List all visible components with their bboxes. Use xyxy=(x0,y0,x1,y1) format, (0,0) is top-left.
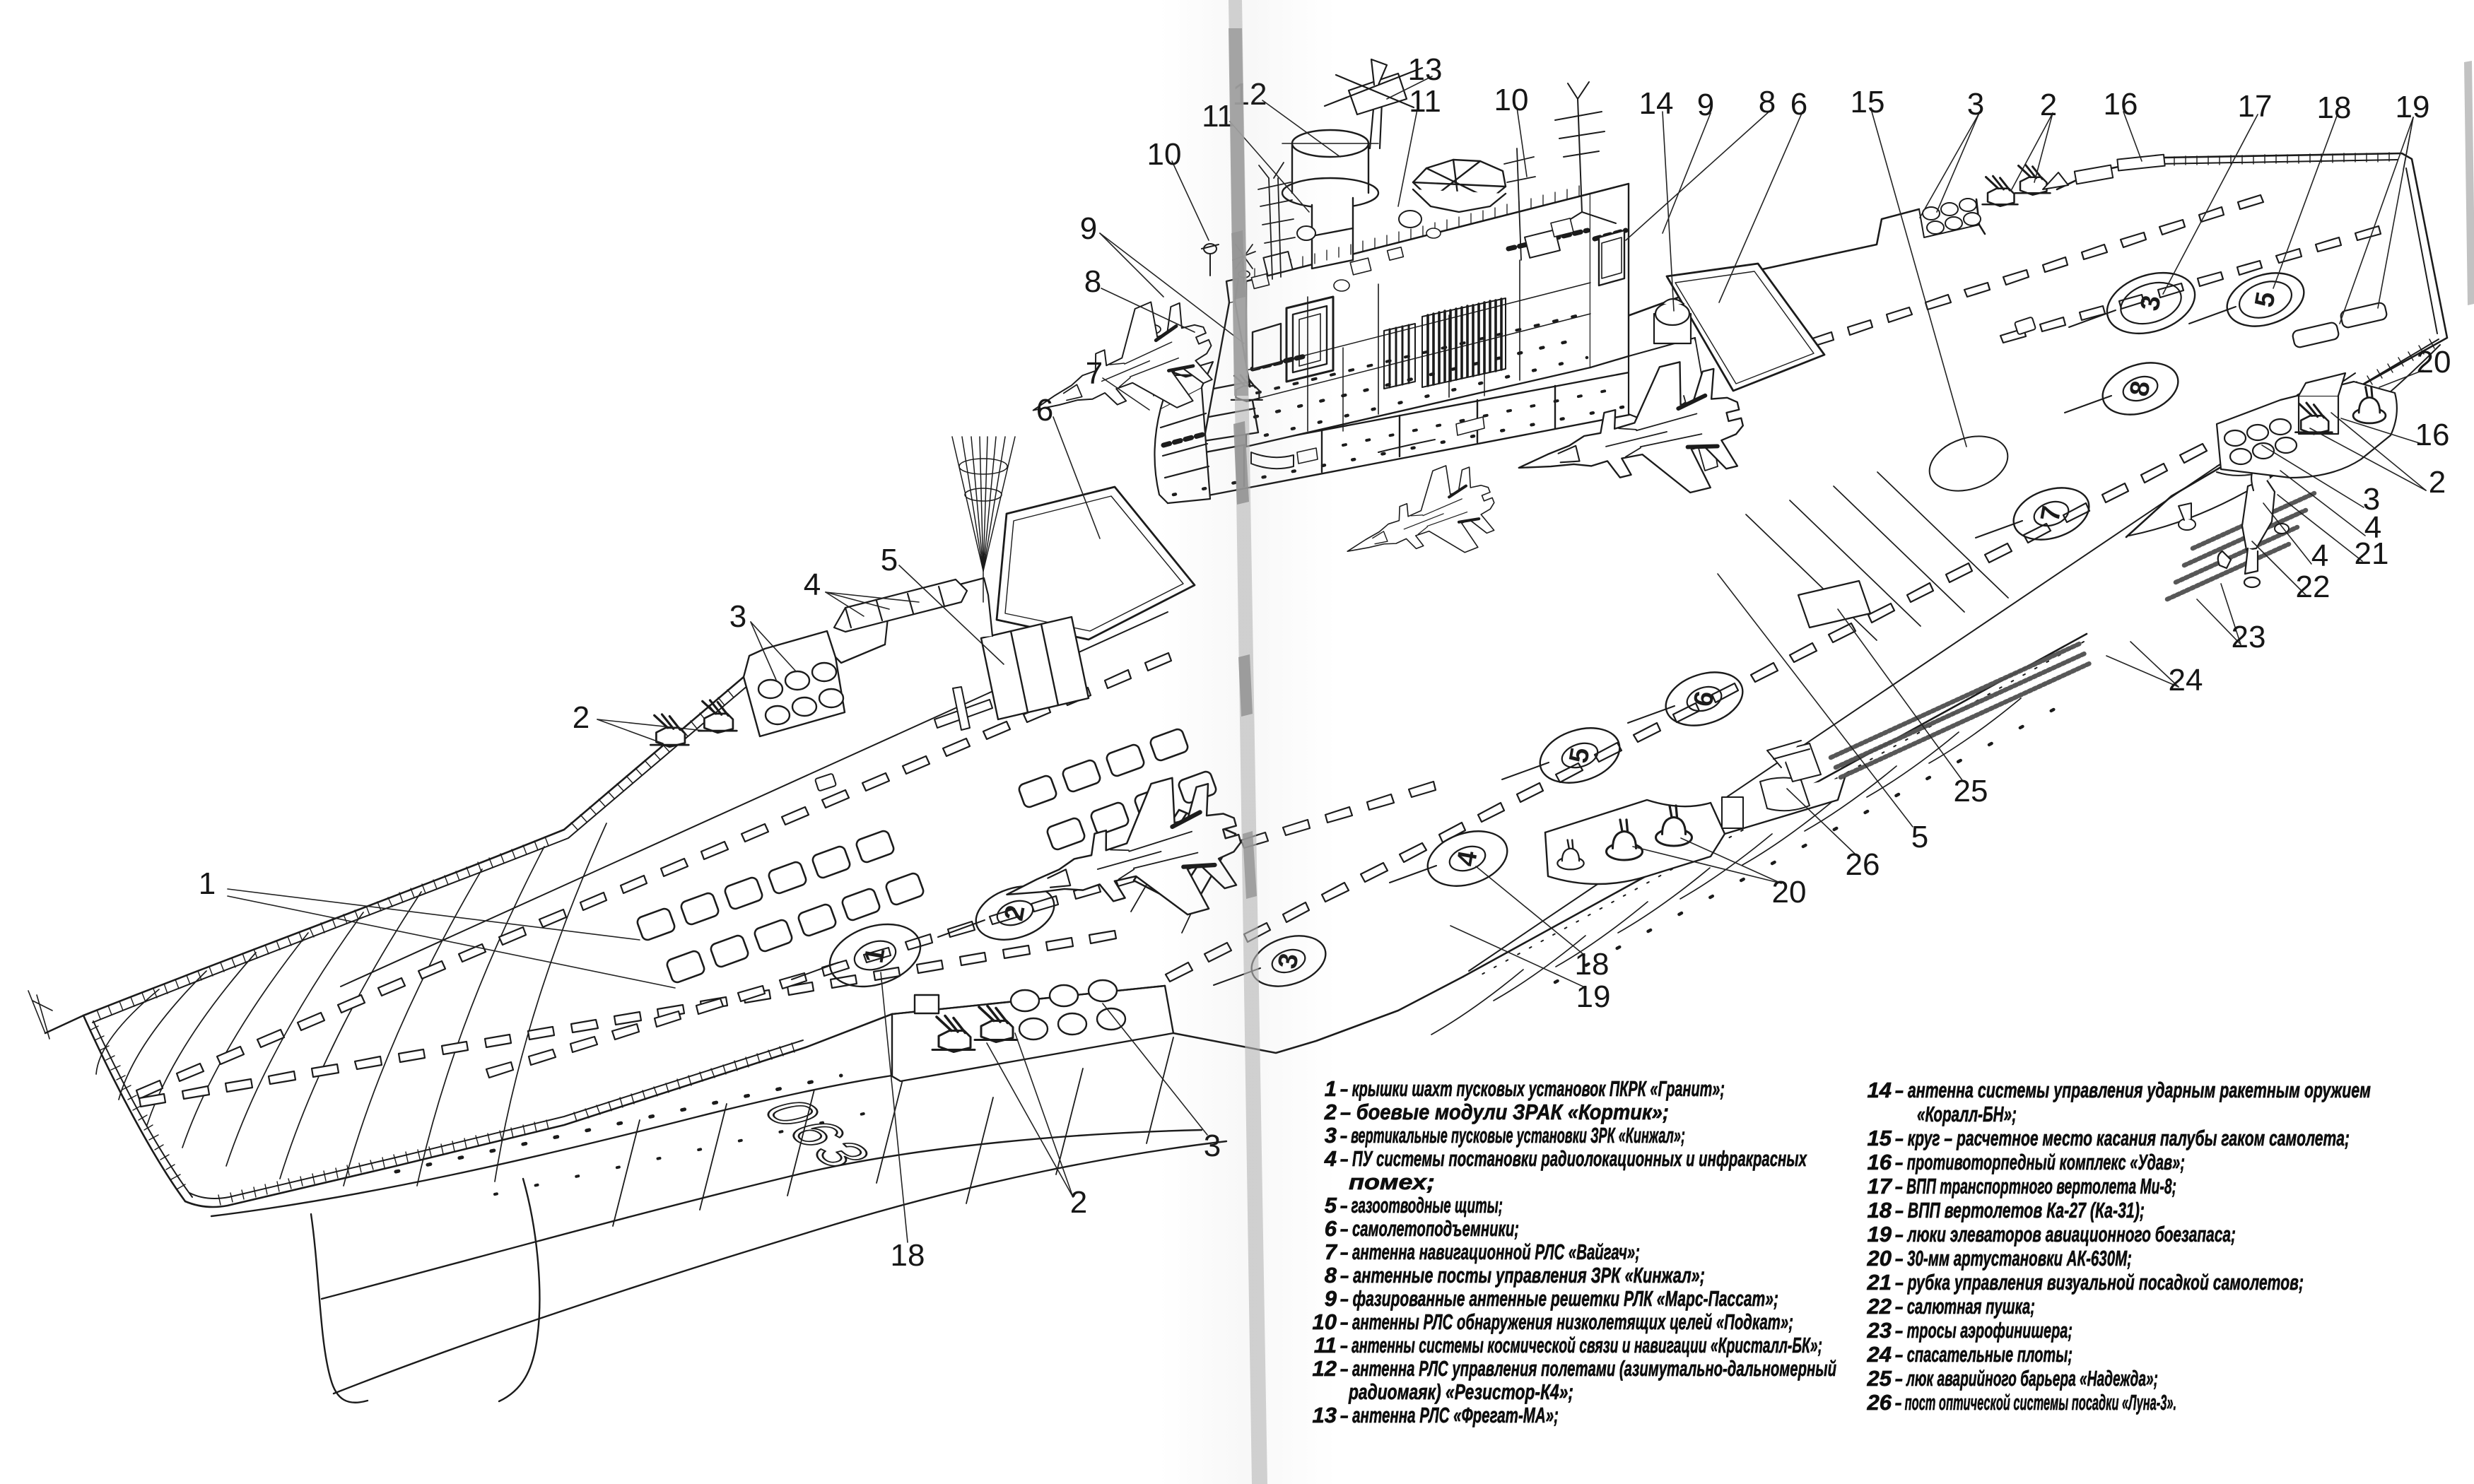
svg-text:10: 10 xyxy=(1494,83,1529,117)
svg-text:радиомаяк) «Резистор-К4»;: радиомаяк) «Резистор-К4»; xyxy=(1348,1379,1573,1404)
svg-text:3: 3 xyxy=(1967,87,1984,122)
svg-text:8: 8 xyxy=(1759,85,1776,119)
svg-text:6: 6 xyxy=(1036,393,1053,428)
svg-text:6: 6 xyxy=(1790,87,1807,122)
svg-text:19: 19 xyxy=(1576,979,1611,1014)
svg-text:2: 2 xyxy=(2040,88,2057,122)
svg-text:– самолетоподъемники;: – самолетоподъемники; xyxy=(1340,1216,1519,1241)
svg-text:14: 14 xyxy=(1639,86,1674,121)
svg-text:14: 14 xyxy=(1868,1078,1892,1102)
svg-text:8: 8 xyxy=(1084,264,1101,299)
svg-text:5: 5 xyxy=(881,543,898,577)
svg-text:22: 22 xyxy=(2296,570,2331,604)
svg-text:– антенна навигационной РЛС «В: – антенна навигационной РЛС «Вайгач»; xyxy=(1340,1239,1640,1264)
svg-text:11: 11 xyxy=(1409,84,1441,119)
svg-text:13: 13 xyxy=(1408,52,1443,87)
svg-text:18: 18 xyxy=(891,1238,925,1273)
svg-text:24: 24 xyxy=(1867,1342,1892,1367)
svg-text:9: 9 xyxy=(1697,88,1714,122)
svg-text:17: 17 xyxy=(1868,1174,1893,1199)
svg-text:2: 2 xyxy=(573,700,590,735)
svg-text:20: 20 xyxy=(1772,875,1807,909)
svg-text:– ВПП вертолетов Ка-27 (Ка-31): – ВПП вертолетов Ка-27 (Ка-31); xyxy=(1895,1198,2145,1223)
svg-text:26: 26 xyxy=(1846,847,1880,882)
svg-text:15: 15 xyxy=(1851,85,1885,119)
svg-text:18: 18 xyxy=(1868,1198,1892,1223)
svg-text:– крышки шахт пусковых установ: – крышки шахт пусковых установок ПКРК «Г… xyxy=(1340,1076,1725,1101)
svg-text:– антенна РЛС «Фрегат-МА»;: – антенна РЛС «Фрегат-МА»; xyxy=(1340,1403,1559,1427)
svg-text:– 30-мм артустановки АК-630М;: – 30-мм артустановки АК-630М; xyxy=(1895,1246,2132,1271)
svg-text:– ВПП транспортного вертолета: – ВПП транспортного вертолета Ми-8; xyxy=(1895,1174,2176,1199)
svg-text:– противоторпедный комплекс «У: – противоторпедный комплекс «Удав»; xyxy=(1895,1150,2185,1174)
svg-text:3: 3 xyxy=(729,599,746,634)
svg-text:26: 26 xyxy=(1867,1390,1892,1415)
svg-text:23: 23 xyxy=(1867,1318,1892,1343)
svg-text:21: 21 xyxy=(1867,1270,1892,1295)
svg-text:– пост оптической системы поса: – пост оптической системы посадки «Луна-… xyxy=(1895,1390,2176,1415)
svg-text:– антенные посты управления ЗР: – антенные посты управления ЗРК «Кинжал»… xyxy=(1340,1263,1705,1288)
svg-text:7: 7 xyxy=(1086,356,1103,391)
svg-text:9: 9 xyxy=(1080,211,1097,246)
svg-text:помех;: помех; xyxy=(1349,1170,1435,1194)
svg-text:18: 18 xyxy=(1575,947,1610,982)
svg-text:25: 25 xyxy=(1867,1366,1892,1391)
svg-text:– боевые модули ЗРАК «Кортик»;: – боевые модули ЗРАК «Кортик»; xyxy=(1340,1100,1669,1124)
svg-text:5: 5 xyxy=(1911,820,1928,854)
svg-text:– антенна РЛС управления полет: – антенна РЛС управления полетами (азиму… xyxy=(1340,1356,1836,1381)
svg-text:– антенны РЛС обнаружения низк: – антенны РЛС обнаружения низколетящих ц… xyxy=(1340,1309,1793,1334)
svg-text:– люки элеваторов авиационного: – люки элеваторов авиационного боезапаса… xyxy=(1895,1222,2236,1247)
svg-text:4: 4 xyxy=(804,567,821,602)
svg-text:2: 2 xyxy=(2429,465,2446,500)
svg-text:– фазированные антенные решетк: – фазированные антенные решетки РЛК «Мар… xyxy=(1340,1286,1778,1311)
svg-text:24: 24 xyxy=(2169,663,2203,697)
svg-text:19: 19 xyxy=(1868,1222,1892,1247)
svg-text:2: 2 xyxy=(1070,1185,1087,1220)
svg-text:16: 16 xyxy=(2104,87,2138,122)
svg-text:18: 18 xyxy=(2317,90,2352,125)
svg-text:15: 15 xyxy=(1868,1126,1892,1150)
svg-text:– салютная пушка;: – салютная пушка; xyxy=(1895,1294,2035,1319)
svg-text:«Коралл-БН»;: «Коралл-БН»; xyxy=(1917,1102,2017,1126)
svg-text:– антенны системы космической: – антенны системы космической связи и на… xyxy=(1340,1333,1822,1358)
svg-text:17: 17 xyxy=(2238,89,2273,124)
svg-text:– люк аварийного барьера «Наде: – люк аварийного барьера «Надежда»; xyxy=(1895,1366,2158,1391)
svg-text:16: 16 xyxy=(1868,1150,1892,1174)
svg-text:21: 21 xyxy=(2355,536,2389,571)
svg-text:1: 1 xyxy=(199,866,216,901)
svg-text:– тросы аэрофинишера;: – тросы аэрофинишера; xyxy=(1895,1318,2073,1343)
svg-text:22: 22 xyxy=(1867,1294,1892,1319)
svg-text:19: 19 xyxy=(2396,90,2430,124)
svg-text:– антенна системы управления у: – антенна системы управления ударным рак… xyxy=(1895,1078,2371,1102)
svg-text:4: 4 xyxy=(2311,538,2328,573)
svg-text:16: 16 xyxy=(2415,418,2450,452)
svg-text:– круг – расчетное место касан: – круг – расчетное место касания палубы … xyxy=(1895,1126,2350,1150)
svg-text:– вертикальные пусковые устано: – вертикальные пусковые установки ЗРК «К… xyxy=(1340,1123,1685,1148)
svg-text:20: 20 xyxy=(2417,345,2451,379)
svg-text:– спасательные плоты;: – спасательные плоты; xyxy=(1895,1342,2073,1367)
svg-text:– рубка управления визуальной: – рубка управления визуальной посадкой с… xyxy=(1895,1270,2304,1295)
svg-text:– ПУ системы постановки радиол: – ПУ системы постановки радиолокационных… xyxy=(1340,1146,1807,1171)
svg-text:25: 25 xyxy=(1954,774,1988,808)
svg-text:23: 23 xyxy=(2232,620,2266,654)
svg-text:20: 20 xyxy=(1867,1246,1892,1271)
svg-text:– газоотводные щиты;: – газоотводные щиты; xyxy=(1340,1193,1503,1218)
